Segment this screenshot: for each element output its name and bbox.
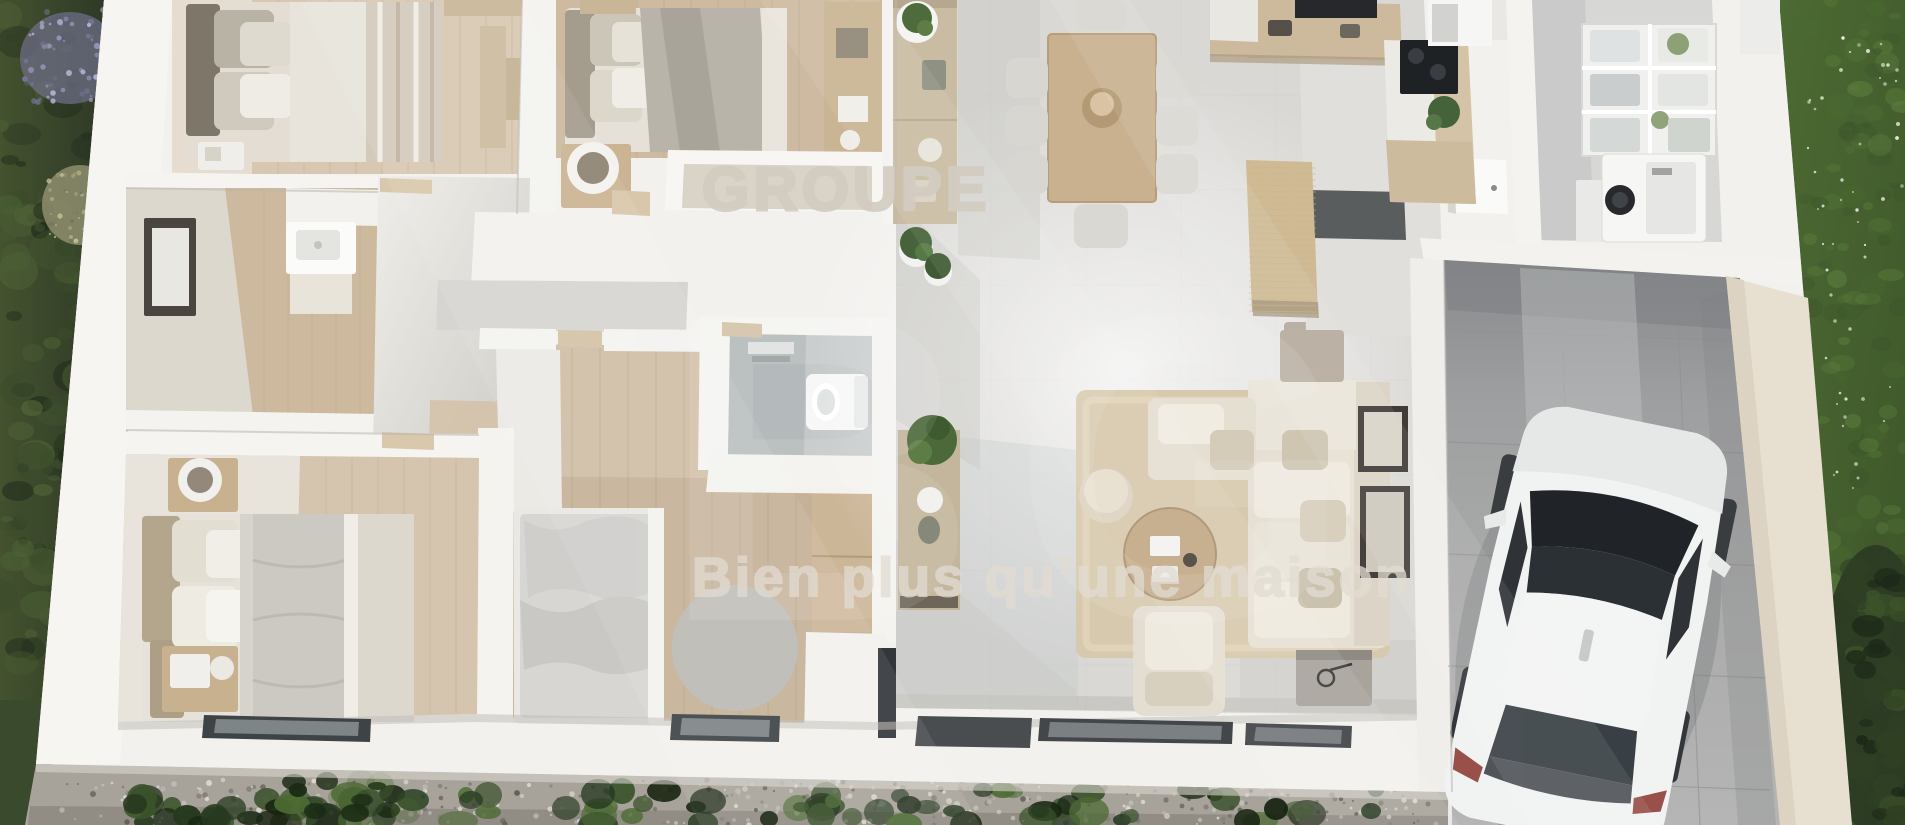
svg-text:BG: BG [660,223,1388,714]
svg-text:Bien plus qu’une maison: Bien plus qu’une maison [692,546,1412,608]
svg-text:GROUPE: GROUPE [702,155,990,223]
